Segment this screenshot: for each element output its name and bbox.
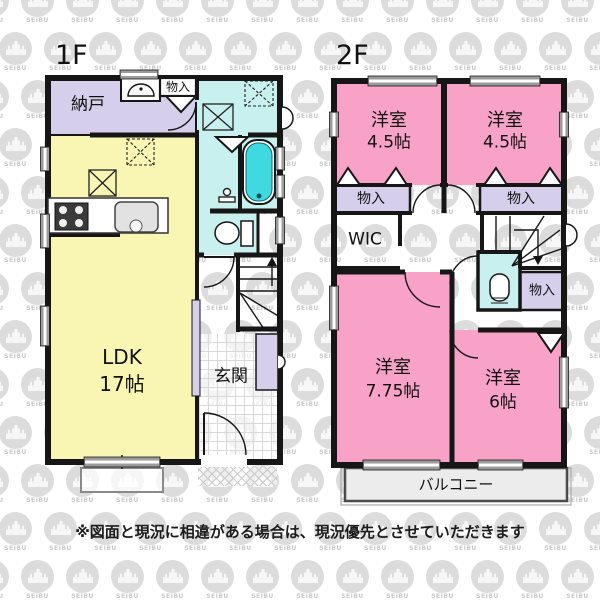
watermark-brand-text: SEIBU	[0, 65, 32, 72]
watermark-brand-text: SEIBU	[134, 545, 167, 552]
window	[41, 306, 50, 346]
toilet-icon-2f	[490, 274, 509, 303]
watermark-circle	[0, 176, 9, 209]
label-balcony: バルコニー	[419, 478, 494, 493]
watermark-brand-text: SEIBU	[179, 545, 212, 552]
watermark-brand-text: SEIBU	[156, 17, 189, 24]
castle-icon	[253, 0, 273, 7]
watermark-circle	[0, 80, 9, 113]
watermark-brand-text: SEIBU	[561, 17, 594, 24]
label-closet-left: 物入	[357, 192, 385, 206]
watermark-brand-text: SEIBU	[21, 17, 54, 24]
watermark-brand-text: SEIBU	[314, 545, 347, 552]
disclaimer-text: ※図面と現況に相違がある場合は、現況優先とさせていただきます	[0, 521, 600, 542]
window	[470, 76, 540, 86]
watermark-brand-text: SEIBU	[0, 353, 32, 360]
label-closet-top: 物入	[166, 81, 190, 93]
watermark-brand-text: SEIBU	[201, 593, 234, 600]
castle-icon	[433, 0, 453, 7]
stove-icon	[55, 203, 88, 230]
watermark-brand-text: SEIBU	[89, 545, 122, 552]
watermark-brand-text: SEIBU	[584, 449, 600, 456]
watermark-brand-text: SEIBU	[66, 593, 99, 600]
watermark-badge: SEIBU	[0, 368, 10, 412]
watermark-badge: SEIBU	[0, 32, 33, 76]
watermark-brand-text: SEIBU	[584, 353, 600, 360]
watermark-badge: SEIBU	[21, 560, 55, 600]
watermark-brand-text: SEIBU	[0, 209, 9, 216]
watermark-brand-text: SEIBU	[66, 17, 99, 24]
watermark-badge: SEIBU	[201, 0, 235, 28]
watermark-brand-text: SEIBU	[0, 545, 32, 552]
watermark-brand-text: SEIBU	[246, 593, 279, 600]
watermark-brand-text: SEIBU	[381, 593, 414, 600]
floorplan-canvas: SEIBUSEIBUSEIBUSEIBUSEIBUSEIBUSEIBUSEIBU…	[0, 0, 600, 600]
castle-icon	[478, 0, 498, 7]
watermark-brand-text: SEIBU	[539, 545, 572, 552]
watermark-badge: SEIBU	[201, 560, 235, 600]
label-closet-small: 物入	[529, 285, 555, 298]
watermark-badge: SEIBU	[0, 176, 10, 220]
watermark-brand-text: SEIBU	[0, 401, 9, 408]
watermark-brand-text: SEIBU	[0, 305, 9, 312]
castle-icon	[568, 0, 588, 7]
castle-icon	[388, 0, 408, 7]
watermark-brand-text: SEIBU	[426, 17, 459, 24]
watermark-badge: SEIBU	[291, 560, 325, 600]
watermark-circle	[0, 368, 9, 401]
watermark-badge: SEIBU	[0, 320, 33, 364]
watermark-badge: SEIBU	[381, 0, 415, 28]
stairs-1f	[240, 257, 280, 329]
watermark-brand-text: SEIBU	[0, 257, 32, 264]
label-bedroom4-size: 6帖	[489, 395, 517, 412]
watermark-brand-text: SEIBU	[44, 545, 77, 552]
watermark-brand-text: SEIBU	[0, 449, 32, 456]
label-bedroom1-name: 洋室	[371, 112, 407, 130]
watermark-badge: SEIBU	[471, 560, 505, 600]
watermark-badge: SEIBU	[246, 0, 280, 28]
castle-icon	[118, 0, 138, 7]
watermark-badge: SEIBU	[0, 224, 33, 268]
label-ldk-size: 17帖	[99, 374, 144, 394]
watermark-circle	[0, 272, 9, 305]
window	[330, 112, 339, 137]
window	[84, 457, 160, 467]
watermark-brand-text: SEIBU	[269, 545, 302, 552]
watermark-badge: SEIBU	[111, 560, 145, 600]
watermark-badge: SEIBU	[66, 560, 100, 600]
label-bedroom4-name: 洋室	[485, 370, 521, 388]
stairs-up-arrow	[267, 257, 277, 266]
watermark-badge: SEIBU	[66, 0, 100, 28]
watermark-brand-text: SEIBU	[246, 17, 279, 24]
watermark-badge: SEIBU	[0, 464, 10, 508]
kitchen-counter	[48, 198, 168, 233]
watermark-brand-text: SEIBU	[21, 593, 54, 600]
window	[276, 147, 285, 170]
label-ldk-name: LDK	[102, 347, 142, 367]
castle-icon	[343, 0, 363, 7]
castle-icon	[523, 0, 543, 7]
watermark-badge: SEIBU	[111, 0, 145, 28]
watermark-badge: SEIBU	[471, 0, 505, 28]
label-bedroom1-size: 4.5帖	[367, 135, 411, 152]
watermark-badge: SEIBU	[584, 416, 600, 460]
watermark-badge: SEIBU	[0, 272, 10, 316]
label-bedroom2-name: 洋室	[487, 112, 523, 130]
watermark-badge: SEIBU	[561, 560, 595, 600]
watermark-brand-text: SEIBU	[471, 593, 504, 600]
watermark-brand-text: SEIBU	[0, 161, 32, 168]
watermark-badge: SEIBU	[21, 0, 55, 28]
floor1-label: 1F	[55, 42, 88, 69]
watermark-brand-text: SEIBU	[359, 545, 392, 552]
watermark-brand-text: SEIBU	[336, 593, 369, 600]
watermark-brand-text: SEIBU	[584, 65, 600, 72]
floor-1-plan	[36, 64, 306, 504]
watermark-brand-text: SEIBU	[471, 17, 504, 24]
watermark-brand-text: SEIBU	[449, 545, 482, 552]
watermark-brand-text: SEIBU	[0, 593, 9, 600]
watermark-brand-text: SEIBU	[291, 593, 324, 600]
window	[560, 112, 569, 137]
watermark-brand-text: SEIBU	[0, 497, 9, 504]
room-ldk	[48, 135, 197, 462]
watermark-brand-text: SEIBU	[111, 593, 144, 600]
watermark-brand-text: SEIBU	[426, 593, 459, 600]
watermark-circle	[0, 464, 9, 497]
watermark-badge: SEIBU	[0, 560, 10, 600]
window	[478, 460, 523, 470]
watermark-badge: SEIBU	[584, 32, 600, 76]
watermark-brand-text: SEIBU	[224, 545, 257, 552]
watermark-badge: SEIBU	[0, 128, 33, 172]
watermark-badge: SEIBU	[426, 560, 460, 600]
watermark-badge: SEIBU	[0, 80, 10, 124]
watermark-brand-text: SEIBU	[561, 593, 594, 600]
exterior-bump-2f	[566, 224, 577, 246]
hall-counter	[192, 300, 200, 396]
watermark-brand-text: SEIBU	[381, 17, 414, 24]
window	[276, 217, 285, 244]
watermark-brand-text: SEIBU	[584, 257, 600, 264]
window	[41, 147, 50, 171]
bathtub-icon	[243, 140, 275, 204]
washbasin-icon	[121, 78, 160, 101]
watermark-brand-text: SEIBU	[404, 545, 437, 552]
exterior-door-bump	[282, 107, 293, 129]
window	[560, 357, 569, 408]
watermark-badge: SEIBU	[0, 0, 10, 28]
label-bedroom3-size: 7.75帖	[366, 384, 421, 401]
watermark-badge: SEIBU	[0, 416, 33, 460]
watermark-brand-text: SEIBU	[584, 545, 600, 552]
watermark-badge: SEIBU	[584, 320, 600, 364]
watermark-circle	[0, 560, 9, 593]
watermark-badge: SEIBU	[516, 560, 550, 600]
castle-icon	[163, 0, 183, 7]
castle-icon	[28, 0, 48, 7]
watermark-badge: SEIBU	[381, 560, 415, 600]
castle-icon	[73, 0, 93, 7]
watermark-brand-text: SEIBU	[156, 593, 189, 600]
watermark-brand-text: SEIBU	[291, 17, 324, 24]
watermark-badge: SEIBU	[156, 560, 190, 600]
watermark-badge: SEIBU	[156, 0, 190, 28]
label-bedroom3-name: 洋室	[375, 359, 411, 377]
terrace-step	[81, 468, 163, 492]
castle-icon	[208, 0, 228, 7]
watermark-badge: SEIBU	[291, 0, 325, 28]
watermark-badge: SEIBU	[246, 560, 280, 600]
watermark-brand-text: SEIBU	[336, 17, 369, 24]
watermark-badge: SEIBU	[336, 0, 370, 28]
label-wic: WIC	[348, 232, 382, 249]
watermark-brand-text: SEIBU	[584, 161, 600, 168]
watermark-badge: SEIBU	[336, 560, 370, 600]
label-nando: 納戸	[71, 97, 105, 114]
watermark-badge: SEIBU	[516, 0, 550, 28]
watermark-brand-text: SEIBU	[0, 17, 9, 24]
window	[330, 286, 339, 330]
watermark-badge: SEIBU	[584, 224, 600, 268]
label-closet-right: 物入	[507, 192, 535, 206]
window	[120, 70, 158, 79]
watermark-badge: SEIBU	[584, 128, 600, 172]
window	[276, 175, 285, 198]
window	[368, 76, 437, 86]
watermark-badge: SEIBU	[561, 0, 595, 28]
watermark-brand-text: SEIBU	[111, 17, 144, 24]
watermark-brand-text: SEIBU	[0, 113, 9, 120]
watermark-badge: SEIBU	[426, 0, 460, 28]
window	[41, 214, 50, 248]
label-genkan: 玄関	[214, 369, 248, 386]
watermark-brand-text: SEIBU	[516, 593, 549, 600]
floor2-label: 2F	[336, 42, 369, 69]
watermark-brand-text: SEIBU	[494, 545, 527, 552]
watermark-brand-text: SEIBU	[201, 17, 234, 24]
window	[363, 460, 440, 470]
toilet-icon-1f	[215, 221, 253, 246]
label-bedroom2-size: 4.5帖	[483, 135, 527, 152]
watermark-brand-text: SEIBU	[516, 17, 549, 24]
castle-icon	[298, 0, 318, 7]
stairs-down-arrow	[533, 256, 543, 265]
